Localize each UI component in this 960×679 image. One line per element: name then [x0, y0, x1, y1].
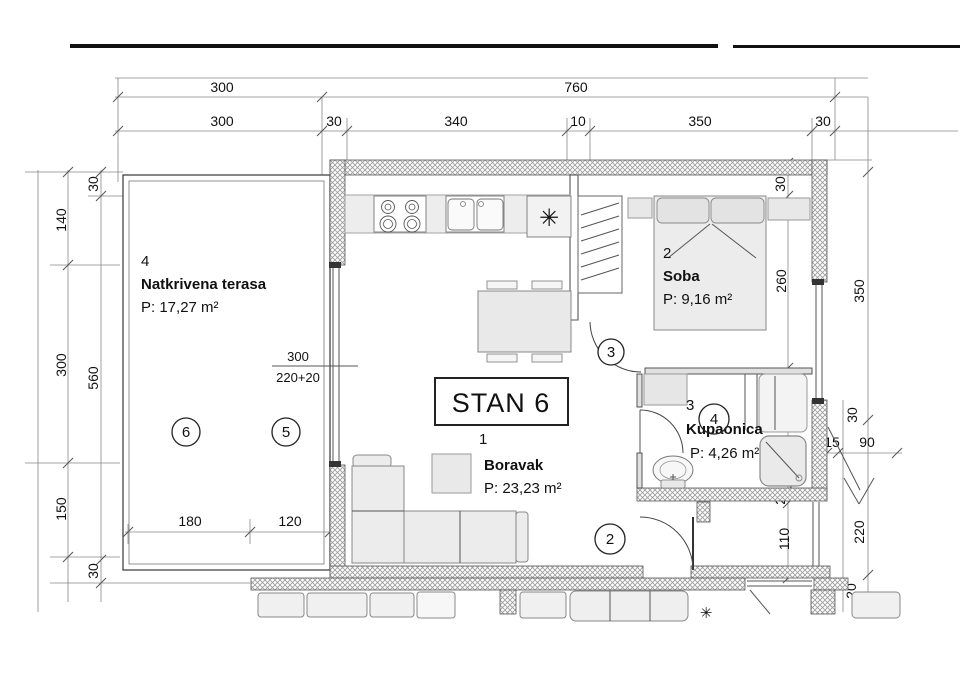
dim-right-350: 350	[851, 279, 867, 303]
toilet-icon	[653, 456, 693, 488]
dim-right-30wall: 30	[772, 176, 788, 192]
terrace-number: 4	[141, 253, 149, 270]
dim-right-220: 220	[851, 520, 867, 544]
window-height-label: 220+20	[276, 370, 320, 385]
dim-left-30top: 30	[85, 176, 101, 192]
terrace-area: P: 17,27 m²	[141, 299, 219, 316]
dim-top2-340: 340	[444, 113, 468, 129]
marker-terrace-right: 5	[272, 418, 300, 446]
living-name: Boravak	[484, 457, 544, 474]
dim-right-260: 260	[773, 269, 789, 293]
floor-plan: 300 760 300 30 340 10 350 30 140 300 150…	[0, 0, 960, 679]
dim-top2-30a: 30	[326, 113, 342, 129]
dim-top2-30b: 30	[815, 113, 831, 129]
living-number: 1	[479, 431, 487, 448]
appliance-icon: ✳	[527, 196, 571, 237]
side-table-icon	[432, 454, 471, 493]
bathroom-area: P: 4,26 m²	[690, 445, 759, 462]
stove-icon	[374, 196, 426, 232]
marker-terrace-left: 6	[172, 418, 200, 446]
washer-icon	[759, 374, 807, 432]
top-border-bars	[70, 44, 960, 48]
kitchen: ✳	[345, 195, 571, 237]
dim-side-90: 90	[859, 434, 875, 450]
svg-text:4: 4	[710, 411, 718, 428]
dim-top2-10: 10	[570, 113, 586, 129]
bedroom-number: 2	[663, 245, 671, 262]
below-appliance-asterisk-glyph: ✳	[700, 604, 713, 622]
bathroom-door-arc	[640, 410, 683, 453]
floor-plan-svg: 300 760 300 30 340 10 350 30 140 300 150…	[0, 0, 960, 679]
sink-icon	[446, 196, 504, 232]
bed-icon	[654, 196, 766, 330]
dim-left-300: 300	[53, 353, 69, 377]
living-area: P: 23,23 m²	[484, 480, 562, 497]
appliance-asterisk-glyph: ✳	[539, 204, 559, 232]
dim-left-150: 150	[53, 497, 69, 521]
shower-icon	[760, 436, 806, 486]
dim-side-30: 30	[844, 407, 860, 423]
wardrobe-icon	[578, 196, 622, 293]
window-width-label: 300	[287, 349, 309, 364]
nightstand-left-icon	[628, 198, 652, 218]
dim-right-110: 110	[776, 528, 792, 551]
nightstand-right-icon	[768, 198, 810, 220]
bedroom-area: P: 9,16 m²	[663, 291, 732, 308]
svg-text:3: 3	[607, 344, 615, 361]
svg-text:2: 2	[606, 531, 614, 548]
svg-text:6: 6	[182, 424, 190, 441]
bathroom-number: 3	[686, 397, 694, 414]
vanity-icon	[644, 374, 687, 405]
dim-top1-760: 760	[564, 79, 588, 95]
marker-entry: 2	[595, 524, 625, 554]
bedroom-window-icon	[812, 279, 824, 404]
dim-terrace-180: 180	[178, 513, 202, 529]
apartment-title: STAN 6	[452, 388, 551, 418]
terrace: 4 Natkrivena terasa P: 17,27 m² 180 120 …	[123, 175, 358, 570]
dim-top2-300: 300	[210, 113, 234, 129]
terrace-name: Natkrivena terasa	[141, 276, 267, 293]
marker-bedroom-door: 3	[598, 339, 624, 365]
hall-window-icon	[813, 502, 819, 566]
dim-top1-300: 300	[210, 79, 234, 95]
dim-left-560: 560	[85, 366, 101, 390]
dim-top2-350: 350	[688, 113, 712, 129]
dim-left-30bot: 30	[85, 563, 101, 579]
svg-text:5: 5	[282, 424, 290, 441]
apartment-title-box: STAN 6	[435, 378, 568, 425]
entrance-door-arc	[640, 517, 693, 570]
dim-left-140: 140	[53, 208, 69, 232]
living-room: STAN 6 1 Boravak P: 23,23 m²	[352, 281, 693, 570]
bedroom-name: Soba	[663, 268, 700, 285]
dim-terrace-120: 120	[278, 513, 302, 529]
terrace-window-icon	[329, 262, 341, 467]
dining-table-icon	[478, 281, 571, 362]
